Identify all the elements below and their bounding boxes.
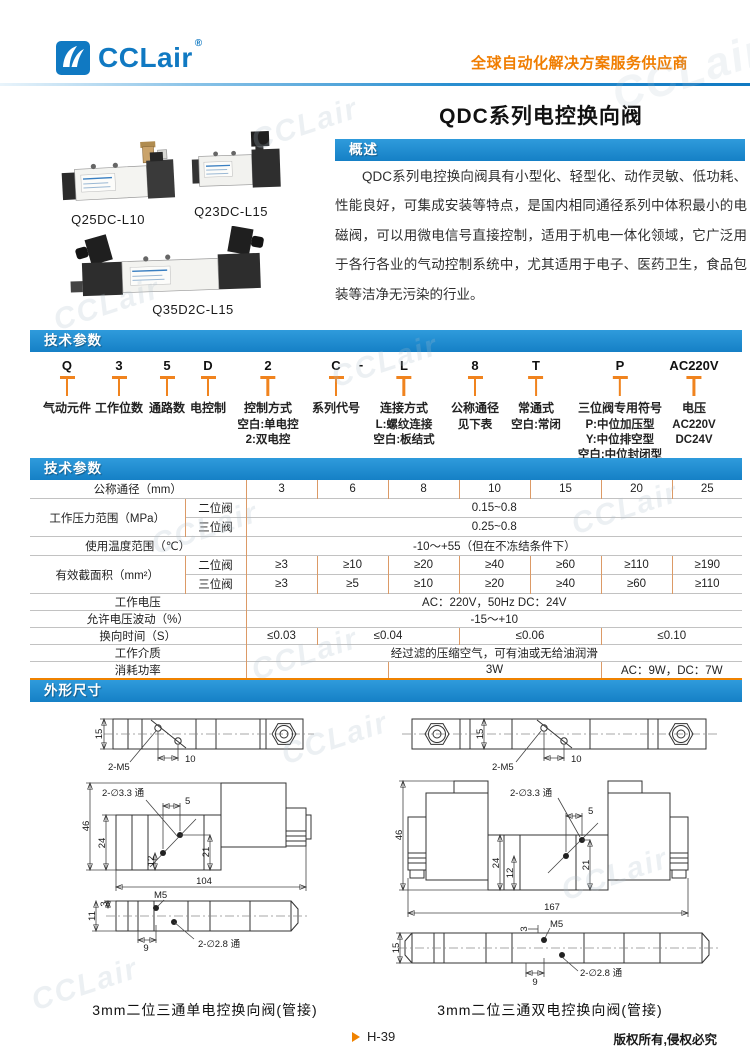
model-code-electric: D 电控制 [190, 357, 226, 416]
svg-text:46: 46 [394, 830, 405, 841]
section-tech-params-label: 技术参数 [44, 333, 102, 348]
product-photo-q25dc-l10 [56, 140, 188, 216]
page-number: H-39 [352, 1029, 395, 1044]
svg-text:46: 46 [81, 821, 92, 832]
svg-text:12: 12 [146, 856, 157, 867]
product-photo-q23dc-l15 [190, 130, 290, 200]
table-row: 工作压力范围（MPa） 二位阀 0.15~0.8 [30, 499, 742, 518]
svg-text:5: 5 [588, 806, 593, 817]
brand-tagline: 全球自动化解决方案服务供应商 [471, 52, 688, 73]
caption-double-valve: 3mm二位三通双电控换向阀(管接) [400, 1000, 700, 1020]
svg-text:9: 9 [143, 943, 148, 954]
product-label-q35d2c-l15: Q35D2C-L15 [133, 302, 253, 317]
table-row: 公称通径（mm） 3 6 8 10 15 20 25 [30, 480, 742, 499]
svg-text:5: 5 [185, 796, 190, 807]
table-row: 有效截面积（mm²） 二位阀 ≥3 ≥10 ≥20 ≥40 ≥60 ≥110 ≥… [30, 556, 742, 575]
table-row: 工作介质 经过滤的压缩空气，可有油或无给油润滑 [30, 645, 742, 662]
model-code-control-mode: 2 控制方式 空白:单电控 2:双电控 [237, 357, 298, 448]
drawing-single-solenoid: 15 2-M5 10 2-∅3.3 通 46 24 12 21 5 [58, 705, 343, 1000]
brand-logo: CCLair ® [55, 40, 202, 76]
page-title: QDC系列电控换向阀 [335, 100, 747, 130]
table-row: 允许电压波动（%） -15～+10 [30, 611, 742, 628]
product-photo-q35d2c-l15 [62, 226, 280, 304]
page-number-arrow-icon [352, 1032, 360, 1042]
spec-table: 公称通径（mm） 3 6 8 10 15 20 25 工作压力范围（MPa） 二… [30, 480, 742, 681]
catalog-page: CCLair ® 全球自动化解决方案服务供应商 QDC系列电控换向阀 概述 QD… [0, 0, 750, 1055]
model-code-three-position: P 三位阀专用符号 P:中位加压型 Y:中位排空型 空白:中位封闭型 [578, 357, 662, 463]
section-overview-label: 概述 [349, 142, 378, 157]
model-code-positions: 3 工作位数 [95, 357, 143, 416]
svg-text:10: 10 [571, 754, 582, 765]
registered-mark: ® [195, 38, 202, 49]
svg-text:24: 24 [97, 838, 108, 849]
svg-text:10: 10 [185, 754, 196, 765]
svg-text:M5: M5 [154, 890, 167, 901]
model-code-diameter: 8 公称通径 见下表 [451, 357, 499, 433]
model-code-ways: 5 通路数 [149, 357, 185, 416]
table-row: 使用温度范围（℃） -10～+55（但在不冻结条件下） [30, 537, 742, 556]
section-dimensions-label: 外形尺寸 [44, 683, 102, 698]
svg-text:21: 21 [581, 860, 592, 871]
svg-text:21: 21 [201, 847, 212, 858]
product-label-q25dc-l10: Q25DC-L10 [48, 212, 168, 227]
svg-text:2-∅3.3 通: 2-∅3.3 通 [510, 788, 553, 799]
section-tech-table: 技术参数 [30, 458, 742, 480]
svg-text:104: 104 [196, 876, 212, 887]
header-divider [0, 83, 750, 86]
product-label-q23dc-l15: Q23DC-L15 [171, 204, 291, 219]
svg-text:3: 3 [519, 926, 530, 931]
model-code-q: Q 气动元件 [43, 357, 91, 416]
svg-text:2-∅2.8 通: 2-∅2.8 通 [580, 968, 623, 979]
overview-paragraph: QDC系列电控换向阀具有小型化、轻型化、动作灵敏、低功耗、性能良好，可集成安装等… [335, 162, 747, 309]
svg-text:M5: M5 [550, 919, 563, 930]
model-code-series: C 系列代号 [312, 357, 360, 416]
model-code-connection: L 连接方式 L:螺纹连接 空白:板结式 [373, 357, 434, 448]
svg-text:2-∅2.8 通: 2-∅2.8 通 [198, 939, 241, 950]
model-code-hyphen: - [359, 357, 363, 372]
cclair-logo-icon [55, 40, 91, 76]
svg-text:11: 11 [87, 911, 98, 921]
svg-text:167: 167 [544, 902, 560, 913]
svg-text:3: 3 [99, 901, 110, 906]
svg-text:2-∅3.3 通: 2-∅3.3 通 [102, 788, 145, 799]
drawing-double-solenoid: 15 2-M5 10 2-∅3.3 通 46 24 12 21 [388, 705, 729, 1000]
table-row: 工作电压 AC：220V，50Hz DC：24V [30, 594, 742, 611]
model-code-normally-open: T 常通式 空白:常闭 [511, 357, 561, 433]
table-row: 消耗功率 3W AC：9W，DC：7W [30, 662, 742, 680]
svg-text:15: 15 [94, 729, 105, 740]
copyright-notice: 版权所有,侵权必究 [614, 1029, 717, 1048]
svg-text:9: 9 [532, 977, 537, 988]
section-overview: 概述 [335, 139, 745, 161]
svg-text:2-M5: 2-M5 [492, 762, 514, 773]
table-row: 换向时间（S） ≤0.03 ≤0.04 ≤0.06 ≤0.10 [30, 628, 742, 645]
model-code-voltage: AC220V 电压 AC220V DC24V [669, 357, 718, 448]
svg-text:15: 15 [391, 943, 402, 954]
section-tech-table-label: 技术参数 [44, 461, 102, 476]
svg-text:2-M5: 2-M5 [108, 762, 130, 773]
section-tech-params: 技术参数 [30, 330, 742, 352]
svg-text:12: 12 [505, 868, 516, 879]
caption-single-valve: 3mm二位三通单电控换向阀(管接) [70, 1000, 340, 1020]
svg-text:24: 24 [491, 858, 502, 869]
section-dimensions: 外形尺寸 [30, 680, 742, 702]
brand-name: CCLair [98, 40, 193, 76]
svg-text:15: 15 [475, 729, 486, 740]
